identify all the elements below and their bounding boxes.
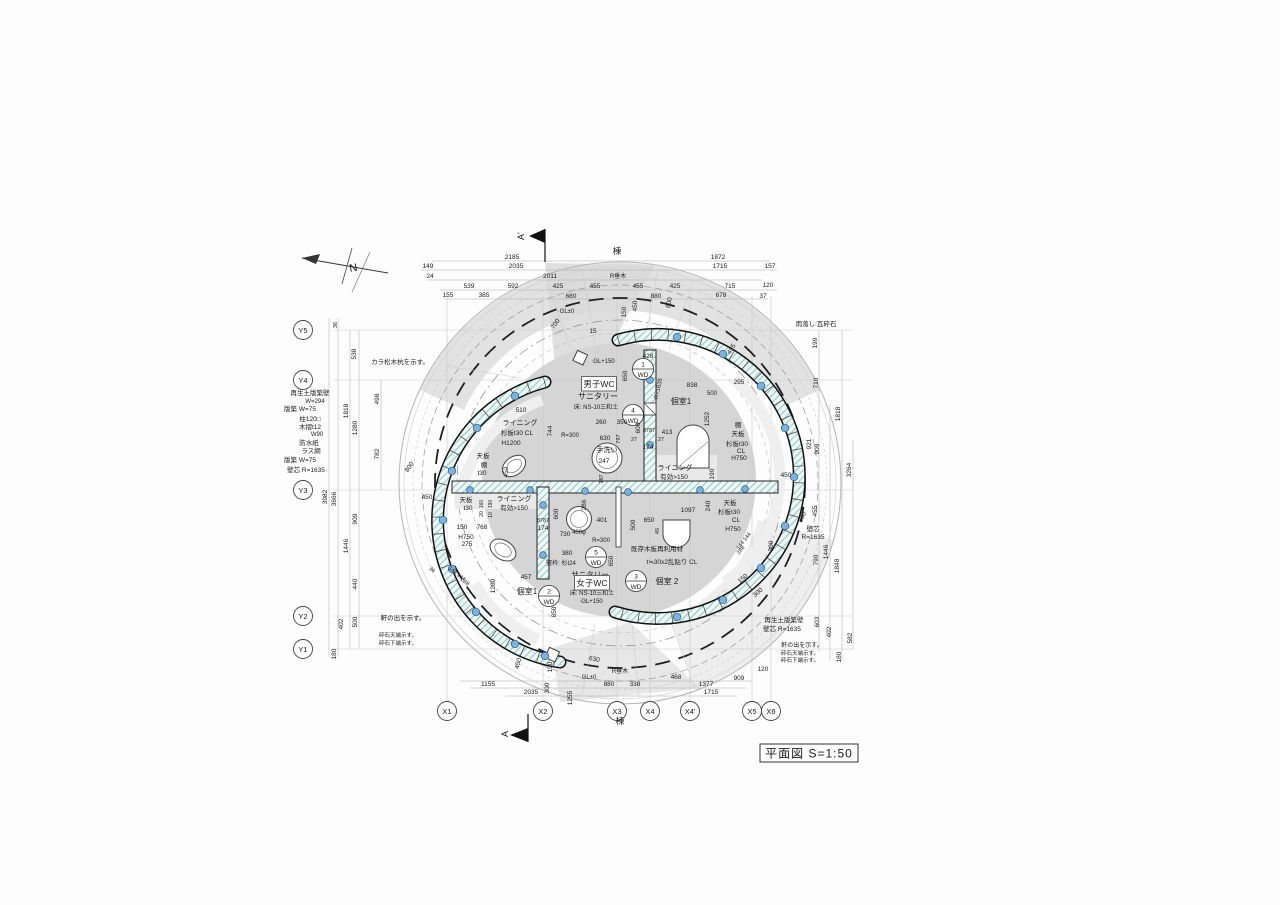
section-mark-bottom: A <box>500 714 528 742</box>
dim-label: 床: NS-10三和土 <box>574 403 618 411</box>
dim-label: 1252 <box>704 411 711 426</box>
grid-label: X3 <box>612 707 621 716</box>
grid-label: X1 <box>442 707 451 716</box>
dim-label: 768 <box>477 524 488 531</box>
dim-label: 砕石天端示す。 <box>781 649 819 657</box>
dim-label: 8787 <box>643 428 655 434</box>
dim-label: 295 <box>734 379 745 386</box>
dim-label: ライニング <box>658 463 693 472</box>
dim-label: 149 <box>423 263 434 270</box>
dim-label: 壁芯 R=1635 <box>287 465 325 474</box>
dim-label: 杉板t30 CL <box>501 428 534 437</box>
dim-label: 498 <box>374 393 381 404</box>
dim-label: 715 <box>725 283 736 290</box>
dim-label: 1872 <box>711 254 726 261</box>
dim-label: 592 <box>508 283 519 290</box>
dim-label: t30 <box>463 505 472 512</box>
dim-label: CL <box>737 448 746 455</box>
dim-label: 砕石下端示す。 <box>379 639 417 647</box>
dim-label: 2185 <box>505 254 520 261</box>
dim-label: 455 <box>812 505 819 516</box>
section-mark-top: A' <box>516 229 545 262</box>
dim-label: 402 <box>826 626 833 637</box>
dim-label: 539 <box>464 283 475 290</box>
dim-label: 1818 <box>343 403 350 418</box>
dim-label: ラス網 <box>301 446 321 455</box>
dim-label: 1200 <box>490 578 497 593</box>
dim-label: 380 <box>562 550 573 557</box>
dim-label: 603 <box>814 616 821 627</box>
door-mark-number: 2 <box>547 589 551 596</box>
dim-label: 582 <box>847 632 854 643</box>
dim-label: 180 <box>836 651 843 662</box>
dim-label: 468 <box>671 674 682 681</box>
dim-label: 457 <box>521 574 532 581</box>
dim-label: t≒30x2乱貼り CL <box>647 557 698 566</box>
dim-label: 個室 2 <box>656 576 679 586</box>
dim-label: 730 <box>560 531 571 538</box>
dim-label: 有効>150 <box>500 503 528 512</box>
dim-label: 600 <box>635 422 642 433</box>
grid-label: X5 <box>747 707 756 716</box>
dim-label: 187 <box>599 474 605 483</box>
dim-label: 150 <box>621 306 628 317</box>
dim-label: 600 <box>553 508 560 519</box>
dim-label: カラ松木杭を示す。 <box>371 357 429 366</box>
section-label-top: A' <box>516 232 526 240</box>
dim-label: ·GL±0 <box>558 309 575 315</box>
dim-label: 木摺t12 <box>299 422 321 431</box>
dim-label: R垂木 <box>610 272 626 280</box>
door-mark-type: WD <box>591 560 602 567</box>
grid-label: Y1 <box>298 645 307 654</box>
dim-label: 240 <box>705 500 712 511</box>
dim-label: 247 <box>599 458 610 465</box>
dim-label: ·GL+150 <box>579 599 603 605</box>
dim-label: 650 <box>608 555 615 566</box>
room-label: 女子WC <box>576 578 607 588</box>
dim-label: 157 <box>765 263 776 270</box>
dim-label: 838 <box>687 382 698 389</box>
dim-label: 1715 <box>713 263 728 270</box>
dim-label: 1848 <box>834 558 841 573</box>
dim-label: ·GL+150 <box>591 359 615 365</box>
dim-label: 288 <box>459 577 470 587</box>
dim-label: 174 <box>538 525 549 532</box>
dim-label: 1255 <box>567 690 574 705</box>
dim-label: 版築 W=75 <box>284 404 316 413</box>
dim-label: 120 <box>763 282 774 289</box>
dim-label: 650 <box>644 517 655 524</box>
arched-fixture <box>663 520 690 548</box>
dim-label: 竪枠: 杉t24 <box>546 559 576 567</box>
dim-label: 190 <box>488 500 494 509</box>
dim-label: 650 <box>551 606 558 617</box>
dim-label: 杉板t30 <box>726 439 748 448</box>
dim-label: 260 <box>596 419 607 426</box>
dim-label: 軒の出を示す。 <box>781 641 822 649</box>
dim-label: 402 <box>338 618 345 629</box>
dim-label: 286 <box>581 499 588 510</box>
dim-label: 有効>150 <box>660 472 688 481</box>
dim-label: 24 <box>426 273 434 280</box>
partition-wall-horizontal <box>452 481 778 493</box>
grid-label: X4 <box>645 707 654 716</box>
dim-label: 199 <box>812 337 819 348</box>
dim-label: 3666 <box>331 491 338 506</box>
dim-label: 678 <box>716 292 727 299</box>
dim-label: 428 <box>643 353 654 360</box>
dim-label: 880 <box>651 293 662 300</box>
dim-label: 天板 <box>477 451 491 460</box>
dim-label: W90 <box>311 432 324 438</box>
dim-label: 天板 <box>724 498 738 507</box>
dim-label: 版築 W=75 <box>284 455 316 464</box>
dim-label: R=300 <box>561 433 580 439</box>
dim-label: 880 <box>604 681 615 688</box>
dim-label: 180 <box>331 648 338 659</box>
dim-label: CL <box>732 517 741 524</box>
dim-label: 744 <box>547 425 554 436</box>
dim-label: 385 <box>479 292 490 299</box>
dim-label: ライニング <box>497 494 532 503</box>
dim-label: 300 <box>768 540 775 551</box>
dim-label: 425 <box>553 283 564 290</box>
dim-label: 155 <box>443 292 454 299</box>
dim-label: R=300 <box>592 538 611 544</box>
north-arrow: N <box>302 248 388 292</box>
arched-fixture <box>677 425 709 468</box>
dim-label: 再生土版築壁 <box>765 615 805 624</box>
dim-label: 630 <box>600 435 611 442</box>
dim-label: 350 <box>617 419 628 426</box>
dim-label: 455 <box>590 283 601 290</box>
dim-label: 782 <box>374 448 381 459</box>
dim-label: 床: NS-10三和土 <box>570 589 614 597</box>
dim-label: 再生土版築壁 <box>291 388 331 397</box>
dim-label: 174 <box>643 444 654 451</box>
partition-wall-thin <box>616 487 621 547</box>
dim-label: 790 <box>813 554 820 565</box>
dim-label: 個室1 <box>517 586 538 596</box>
dim-label: 壁芯 R=1635 <box>763 624 801 633</box>
dim-label: 柱120□ <box>299 414 320 423</box>
dim-label: R=1635 <box>802 534 825 541</box>
dim-label: 538 <box>351 348 358 359</box>
dim-label: 909 <box>352 513 359 524</box>
door-mark-number: 4 <box>631 408 635 415</box>
dim-label: 650 <box>622 370 629 381</box>
dim-label: 棟 <box>616 716 625 726</box>
dim-label: 150 <box>457 524 468 531</box>
dim-label: 909 <box>814 443 821 454</box>
grid-label: Y2 <box>298 612 307 621</box>
dim-label: 杉板t30 <box>718 507 740 516</box>
dim-label: 452 <box>503 466 510 477</box>
dim-label: 壁芯 <box>807 524 821 533</box>
dim-label: 個室1 <box>671 396 692 406</box>
dim-label: サニタリー <box>578 392 618 401</box>
dim-label: 1818 <box>835 406 842 421</box>
dim-label: 710 <box>813 377 820 388</box>
dim-label: H1200 <box>501 440 521 447</box>
dim-label: 45 <box>655 528 661 534</box>
dim-label: 160 <box>479 500 485 509</box>
dim-label: 400φ <box>572 530 586 536</box>
door-mark-number: 1 <box>641 362 645 369</box>
dim-label: 手洗い <box>597 445 618 454</box>
door-mark-type: WD <box>638 372 649 379</box>
dim-label: 37 <box>759 293 767 300</box>
dim-label: 300 <box>544 682 551 693</box>
grid-label: X6 <box>766 707 775 716</box>
dim-label: ライニング <box>503 418 538 427</box>
section-label-bottom: A <box>500 731 510 737</box>
dim-label: 36 <box>427 566 436 574</box>
dim-label: 1377 <box>699 681 714 688</box>
dim-label: 軒の出を示す。 <box>381 613 426 622</box>
dim-label: 510 <box>516 407 527 414</box>
dim-label: H750 <box>725 526 741 533</box>
dim-label: 500 <box>630 519 637 530</box>
drawing-title: 平面図 S=1:50 <box>765 747 853 761</box>
dim-label: 27 <box>631 437 637 443</box>
dim-label: 190 <box>547 661 554 672</box>
dim-label: 450 <box>632 300 639 311</box>
dim-label: 921 <box>806 438 813 449</box>
dim-label: 既存木板再利用材 <box>631 544 684 553</box>
dim-label: 棚 <box>735 420 742 429</box>
dim-label: 1097 <box>681 507 696 514</box>
dim-label: H750 <box>458 534 474 541</box>
dim-label: 天板 <box>732 429 746 438</box>
dim-label: 15 <box>589 328 597 335</box>
dim-label: 909 <box>734 675 745 682</box>
dim-label: 680 <box>566 293 577 300</box>
dim-label: 3264 <box>846 462 853 477</box>
dim-label: 棟 <box>613 246 622 256</box>
dim-label: 1446 <box>823 544 830 559</box>
door-mark-number: 5 <box>594 550 598 557</box>
grid-label: Y5 <box>298 326 307 335</box>
dim-label: 砕石天端示す。 <box>379 631 417 639</box>
dim-label: 1715 <box>704 689 719 696</box>
grid-label: Y4 <box>298 376 307 385</box>
dim-label: 455 <box>633 283 644 290</box>
dim-label: ·GL±0 <box>580 675 597 681</box>
dim-label: 2035 <box>509 263 524 270</box>
dim-label: 2035 <box>524 689 539 696</box>
dim-label: 8787 <box>537 518 549 524</box>
dim-label: R垂木 <box>612 667 628 675</box>
dim-label: 500 <box>707 391 718 397</box>
dim-label: 砕石下端示す。 <box>781 656 819 664</box>
dim-label: 天板 <box>460 495 474 504</box>
dim-label: 1280 <box>352 420 359 435</box>
grid-label: X2 <box>538 707 547 716</box>
dim-label: 413 <box>662 429 673 436</box>
dim-label: 190 <box>709 468 716 479</box>
door-mark-number: 3 <box>634 574 638 581</box>
dim-label: 120 <box>758 666 769 673</box>
dim-label: 450 <box>781 472 792 479</box>
dim-label: 防水紙 <box>299 438 319 447</box>
dim-label: 27 <box>658 437 664 443</box>
dim-label: 797 <box>616 434 622 443</box>
dim-label: 450 <box>422 494 433 501</box>
dim-label: 3982 <box>322 489 329 504</box>
dim-label: 800 <box>404 460 416 473</box>
dim-label: 1446 <box>343 538 350 553</box>
dim-label: 450 <box>514 657 524 670</box>
room-label: 男子WC <box>583 379 614 389</box>
dim-label: 440 <box>352 578 359 589</box>
dim-label: t30 <box>477 470 486 477</box>
title-block: 平面図 S=1:50 <box>760 744 858 762</box>
dim-label: 401 <box>597 517 608 524</box>
north-label: N <box>348 262 358 275</box>
dim-label: 425 <box>670 283 681 290</box>
dim-label: 275 <box>462 541 473 548</box>
door-mark-type: WD <box>544 599 555 606</box>
dim-label: 500 <box>352 616 359 627</box>
dim-label: 1155 <box>481 681 495 688</box>
floor-plan-canvas: N A' A X1X2X3X4X4'X5X6Y5Y4Y3Y2Y1 1WD4WD5… <box>0 0 1280 905</box>
dim-label: H750 <box>731 455 747 462</box>
door-mark-type: WD <box>631 584 642 591</box>
grid-label: X4' <box>685 707 696 716</box>
grid-label: Y3 <box>298 486 307 495</box>
dim-label: 雨落し:瓦砕石 <box>796 319 837 328</box>
dim-label: 36 <box>333 322 339 328</box>
dim-label: W=294 <box>305 399 325 405</box>
dim-label: 10 <box>488 512 494 518</box>
dim-label: 棚 <box>481 460 488 469</box>
dim-label: 2011 <box>543 273 557 280</box>
dim-label: 20 <box>479 511 485 517</box>
drawing-sheet: { "title": {"text": "平面図 S=1:50"}, "nort… <box>0 0 1280 905</box>
dim-label: 338 <box>630 681 641 688</box>
